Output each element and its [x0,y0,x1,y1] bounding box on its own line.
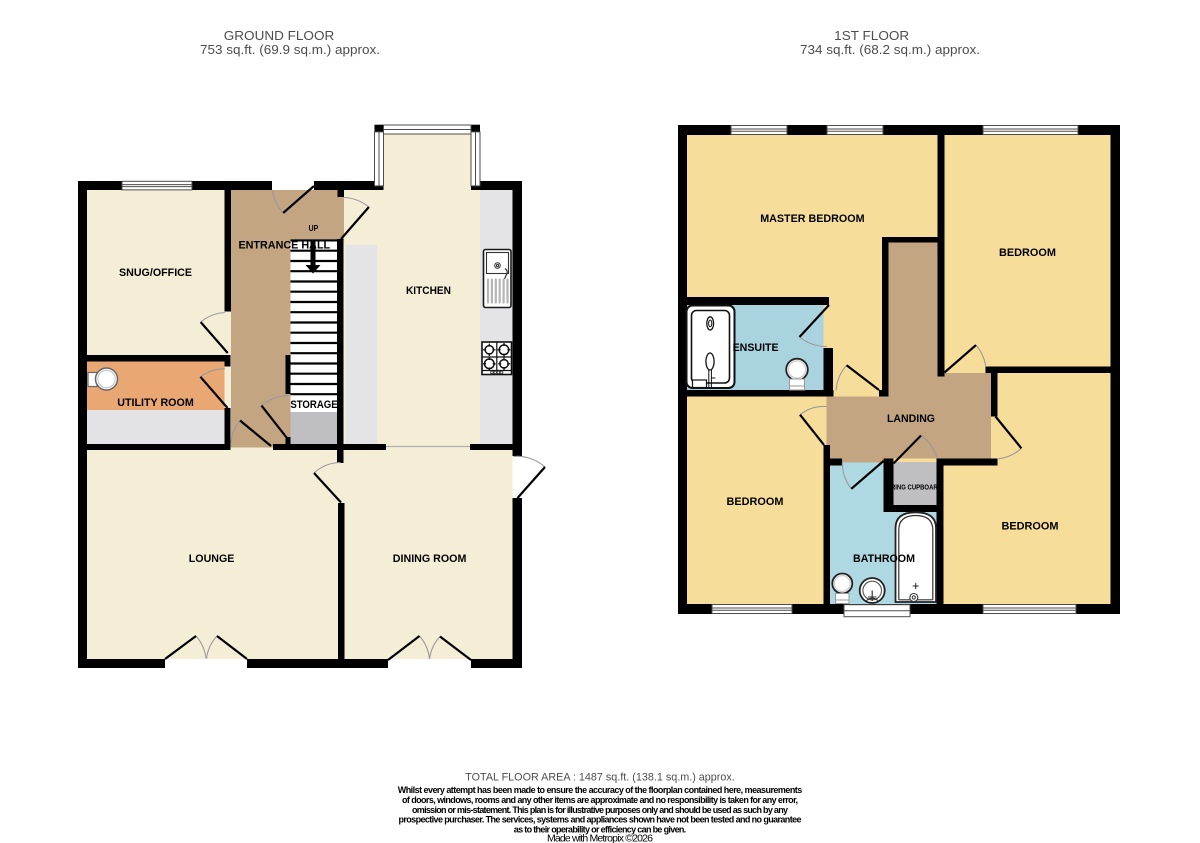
svg-text:734 sq.ft. (68.2 sq.m.) approx: 734 sq.ft. (68.2 sq.m.) approx. [800,42,980,57]
svg-text:UTILITY ROOM: UTILITY ROOM [117,397,194,409]
svg-text:753 sq.ft. (69.9 sq.m.) approx: 753 sq.ft. (69.9 sq.m.) approx. [200,42,380,57]
svg-text:MASTER BEDROOM: MASTER BEDROOM [760,213,864,225]
svg-text:1ST FLOOR: 1ST FLOOR [834,28,909,43]
svg-text:of doors, windows, rooms and a: of doors, windows, rooms and any other i… [402,795,798,805]
svg-text:LANDING: LANDING [887,413,935,425]
svg-text:Made with Metropix ©2026: Made with Metropix ©2026 [547,832,653,843]
svg-text:STORAGE: STORAGE [290,399,337,411]
svg-text:SNUG/OFFICE: SNUG/OFFICE [119,267,192,279]
svg-text:AIRING CUPBOARD: AIRING CUPBOARD [885,485,942,492]
svg-text:BEDROOM: BEDROOM [1002,521,1059,533]
svg-text:DINING ROOM: DINING ROOM [393,553,467,565]
svg-text:prospective purchaser. The ser: prospective purchaser. The services, sys… [399,815,802,825]
svg-text:KITCHEN: KITCHEN [406,285,451,297]
svg-text:BATHROOM: BATHROOM [853,553,915,565]
svg-text:ENSUITE: ENSUITE [733,342,779,354]
svg-text:BEDROOM: BEDROOM [999,247,1056,259]
svg-text:GROUND FLOOR: GROUND FLOOR [224,28,335,43]
svg-text:UP: UP [309,224,319,233]
svg-text:LOUNGE: LOUNGE [189,553,235,565]
svg-text:Whilst every attempt has been: Whilst every attempt has been made to en… [398,785,802,795]
svg-text:TOTAL FLOOR AREA : 1487 sq.ft.: TOTAL FLOOR AREA : 1487 sq.ft. (138.1 sq… [465,771,735,783]
svg-text:BEDROOM: BEDROOM [727,496,784,508]
svg-text:omission or mis-statement. Thi: omission or mis-statement. This plan is … [412,805,788,815]
svg-text:ENTRANCE HALL: ENTRANCE HALL [238,240,330,252]
